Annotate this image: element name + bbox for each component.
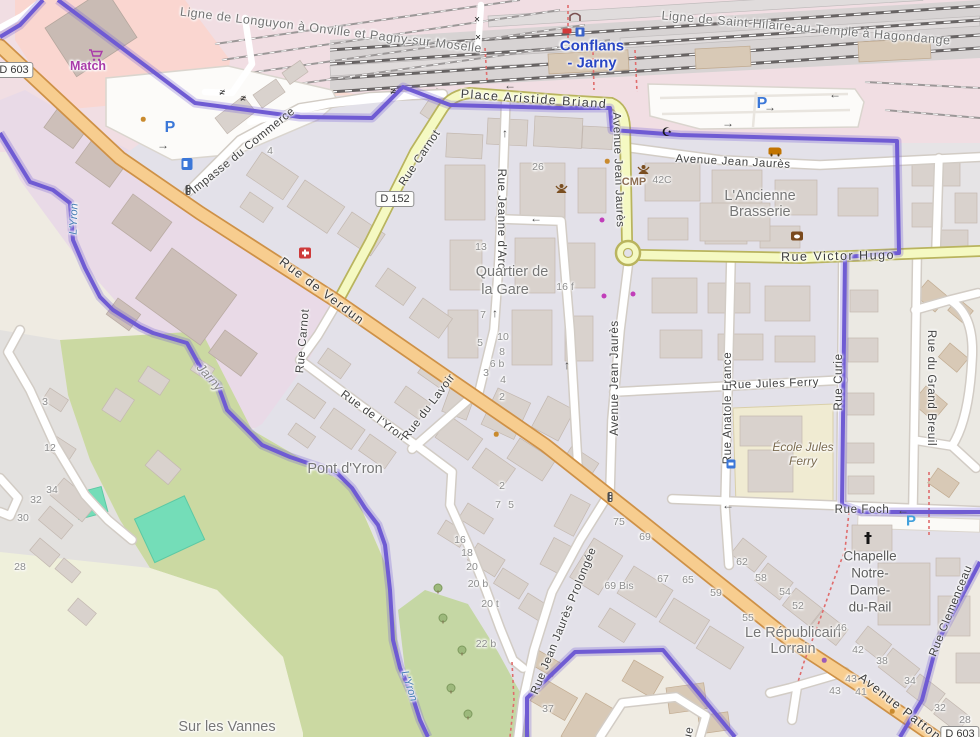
- place-name-label: Quartier de: [476, 264, 549, 280]
- poi-dot-orange-icon: [605, 159, 610, 164]
- street-name-label: Rue Foch: [835, 504, 890, 516]
- house-number: 20 b: [468, 578, 488, 590]
- house-number: 18: [461, 547, 473, 559]
- house-number: 42C: [652, 174, 671, 186]
- house-number: 2: [499, 391, 505, 403]
- street-name-label: Rue: [680, 726, 697, 737]
- oneway-arrow-icon: →: [157, 138, 169, 152]
- place-name-label: Le Républicain: [745, 625, 841, 641]
- parking-icon: P: [165, 119, 176, 137]
- oneway-arrow-icon: ←: [530, 211, 542, 225]
- tree-icon: [458, 646, 467, 655]
- house-number: 30: [17, 512, 29, 524]
- house-number: 5: [477, 337, 483, 349]
- house-number: 10: [497, 331, 509, 343]
- house-number: 5: [508, 499, 514, 511]
- level-crossing-icon: ≠: [218, 87, 226, 99]
- traffic-light-icon: [186, 185, 191, 195]
- house-number: 7: [495, 499, 501, 511]
- shop-dot-icon: [600, 218, 605, 223]
- street-name-label: Avenue Patton: [856, 670, 944, 737]
- street-name-label: Rue Curie: [833, 353, 845, 410]
- poi-dot-orange-icon: [890, 709, 895, 714]
- house-number: 54: [779, 586, 791, 598]
- house-number: 55: [742, 612, 754, 624]
- street-name-label: Rue Jules Ferry: [729, 376, 820, 391]
- oneway-arrow-icon: →: [764, 100, 776, 114]
- level-crossing-icon: ≠: [239, 93, 247, 105]
- level-crossing-icon: ×: [474, 15, 480, 26]
- street-name-label: Rue Carnot: [397, 128, 443, 188]
- house-number: 58: [755, 572, 767, 584]
- route-shield: D 152: [375, 191, 414, 207]
- rail-box-icon: [563, 29, 572, 34]
- house-number: 28: [959, 714, 971, 726]
- house-number: 20 t: [481, 598, 499, 610]
- house-number: 32: [30, 494, 42, 506]
- level-crossing-icon: ×: [475, 33, 481, 44]
- street-name-label: Rue Victor Hugo: [781, 248, 895, 264]
- fuel-icon: [182, 158, 193, 170]
- oneway-arrow-icon: ↑: [564, 358, 570, 372]
- first-aid-icon: [299, 248, 311, 259]
- street-name-label: Rue Jeanne d'Arc: [495, 169, 507, 270]
- tree-icon: [447, 684, 456, 693]
- house-number: 69 Bis: [604, 580, 633, 592]
- shop-dot-icon: [631, 292, 636, 297]
- tree-icon: [439, 614, 448, 623]
- house-number: 46: [835, 622, 847, 634]
- house-number: 22 b: [476, 638, 496, 650]
- shop-dot-icon: [602, 294, 607, 299]
- street-name-label: Rue Anatole France: [722, 352, 734, 464]
- place-name-label: Notre-: [851, 566, 889, 581]
- street-name-label: Rue du Lavoir: [400, 372, 457, 443]
- amenity-name-label: CMP: [622, 176, 646, 188]
- house-number: 69: [639, 531, 651, 543]
- street-name-label: Rue Jean Jaurès Prolongée: [529, 546, 599, 697]
- oneway-arrow-icon: ←: [829, 87, 841, 101]
- station-name-label: Conflans: [560, 38, 624, 55]
- street-name-label: Place Aristide Briand: [460, 87, 607, 111]
- map-canvas[interactable]: Ligne de Longuyon à Onville et Pagny-sur…: [0, 0, 980, 737]
- house-number: 38: [876, 655, 888, 667]
- place-name-label: du-Rail: [849, 600, 892, 615]
- oneway-arrow-icon: ↑: [502, 126, 508, 140]
- house-number: 4: [267, 145, 273, 157]
- house-number: 4: [500, 374, 506, 386]
- route-shield: D 603: [0, 62, 34, 78]
- street-name-label: Rue Carnot: [294, 308, 312, 374]
- house-number: 41: [855, 686, 867, 698]
- house-number: 3: [483, 367, 489, 379]
- house-number: 13: [475, 241, 487, 253]
- traffic-light-icon: [608, 492, 613, 502]
- house-number: 34: [46, 484, 58, 496]
- place-name-label: Dame-: [850, 583, 891, 598]
- street-name-label: Avenue Jean Jaurès: [609, 320, 621, 435]
- place-name-label: Sur les Vannes: [178, 719, 275, 735]
- street-name-label: Rue du Grand Breuil: [925, 330, 937, 446]
- oneway-arrow-icon: ←: [897, 503, 909, 517]
- house-number: 7: [480, 309, 486, 321]
- oneway-arrow-icon: →: [722, 116, 734, 130]
- house-number: 34: [904, 675, 916, 687]
- oneway-arrow-icon: ←: [504, 78, 516, 92]
- street-name-label: Avenue Jean Jaurès: [610, 112, 626, 228]
- street-name-label: Rue de l'Yron: [338, 388, 407, 443]
- house-number: 12: [44, 442, 56, 454]
- house-number: 20: [466, 561, 478, 573]
- place-name-label: Chapelle: [843, 549, 896, 564]
- school-name-label: École Jules: [772, 440, 833, 454]
- house-number: 26: [532, 161, 544, 173]
- house-number: 67: [657, 573, 669, 585]
- station-icon: [576, 28, 585, 37]
- poi-dot-orange-icon: [494, 432, 499, 437]
- house-number: 42: [852, 644, 864, 656]
- house-number: 43: [845, 673, 857, 685]
- map-labels-layer: Ligne de Longuyon à Onville et Pagny-sur…: [0, 0, 980, 737]
- house-number: 65: [682, 574, 694, 586]
- house-number: 52: [792, 600, 804, 612]
- house-number: 8: [499, 346, 505, 358]
- house-number: 28: [14, 561, 26, 573]
- house-number: 59: [710, 587, 722, 599]
- river-name-label: L'Yron: [398, 669, 419, 703]
- route-shield: D 603: [940, 726, 979, 737]
- house-number: 16: [454, 534, 466, 546]
- place-name-label: Brasserie: [729, 204, 790, 220]
- street-name-label: Rue de Verdun: [277, 254, 368, 327]
- house-number: 37: [542, 703, 554, 715]
- railway-line-label: Ligne de Saint-Hilaire-au-Temple à Hagon…: [661, 8, 951, 47]
- tree-icon: [464, 710, 473, 719]
- house-number: 16 f: [556, 281, 574, 293]
- house-number: 6 b: [490, 358, 505, 370]
- oneway-arrow-icon: ↑: [492, 306, 498, 320]
- bus-stop-icon: [727, 460, 736, 469]
- place-name-label: Pont d'Yron: [307, 461, 382, 477]
- river-name-label: L'Yron: [67, 203, 80, 235]
- level-crossing-icon: ≠: [389, 86, 396, 98]
- street-name-label: Avenue Jean Jaurès: [675, 153, 791, 171]
- oneway-arrow-icon: ←: [722, 498, 734, 512]
- house-number: 62: [736, 556, 748, 568]
- house-number: 75: [613, 516, 625, 528]
- station-name-label: - Jarny: [567, 55, 616, 72]
- house-number: 43: [829, 685, 841, 697]
- place-name-label: L'Ancienne: [724, 188, 795, 204]
- house-number: 32: [934, 702, 946, 714]
- school-name-label: Ferry: [789, 454, 817, 468]
- tree-icon: [434, 584, 443, 593]
- poi-dot-orange-icon: [141, 117, 146, 122]
- mosque-icon: ☪: [662, 125, 673, 139]
- house-number: 2: [499, 480, 505, 492]
- poi-dot-purple-icon: [822, 658, 827, 663]
- place-name-label: Lorrain: [770, 641, 815, 657]
- house-number: 3: [42, 396, 48, 408]
- street-name-label: Rue Clemenceau: [927, 564, 975, 659]
- attraction-icon: [791, 232, 803, 241]
- boundary-name-label: Jarny: [194, 360, 226, 394]
- place-name-label: la Gare: [481, 282, 529, 298]
- street-name-label: Impasse du Commerce: [189, 105, 298, 196]
- car-shop-icon: [769, 148, 782, 155]
- church-cross-icon: [864, 532, 873, 544]
- railway-line-label: Ligne de Longuyon à Onville et Pagny-sur…: [179, 5, 482, 56]
